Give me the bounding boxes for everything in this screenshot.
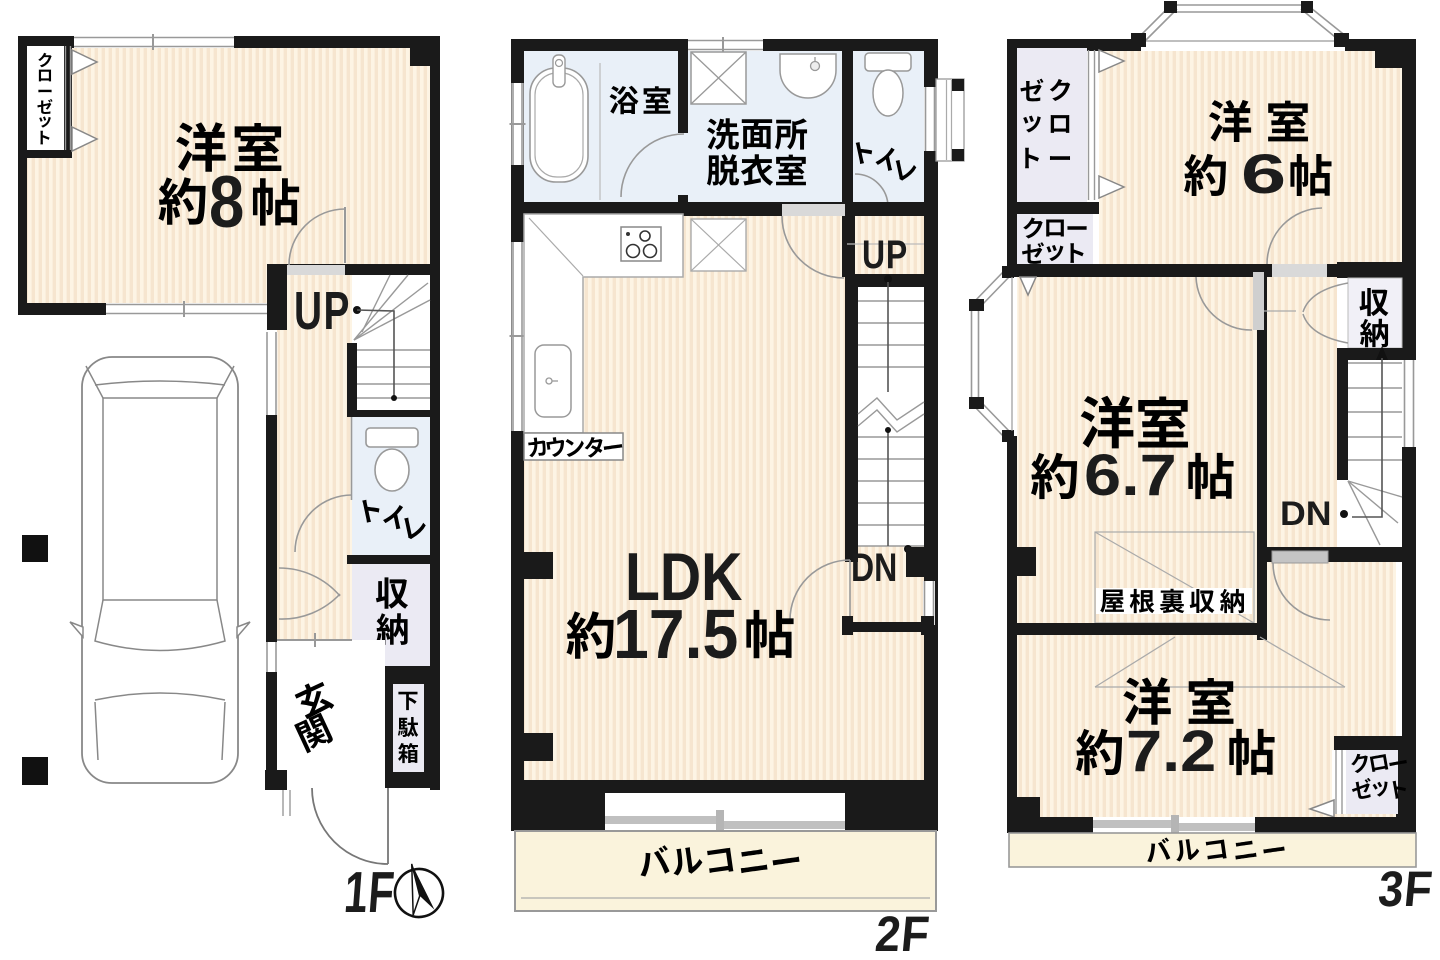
svg-text:3F: 3F — [1376, 862, 1436, 918]
svg-text:1F: 1F — [342, 859, 397, 924]
svg-text:17.5: 17.5 — [613, 596, 738, 674]
svg-text:DN: DN — [1280, 495, 1332, 533]
svg-text:UP: UP — [862, 232, 908, 277]
svg-text:6.7: 6.7 — [1084, 443, 1177, 508]
svg-text:UP: UP — [294, 280, 351, 341]
svg-text:DN: DN — [851, 545, 897, 590]
svg-text:7.2: 7.2 — [1126, 719, 1216, 784]
svg-text:8: 8 — [209, 162, 244, 243]
svg-text:2F: 2F — [873, 907, 933, 960]
svg-text:6: 6 — [1241, 142, 1286, 205]
